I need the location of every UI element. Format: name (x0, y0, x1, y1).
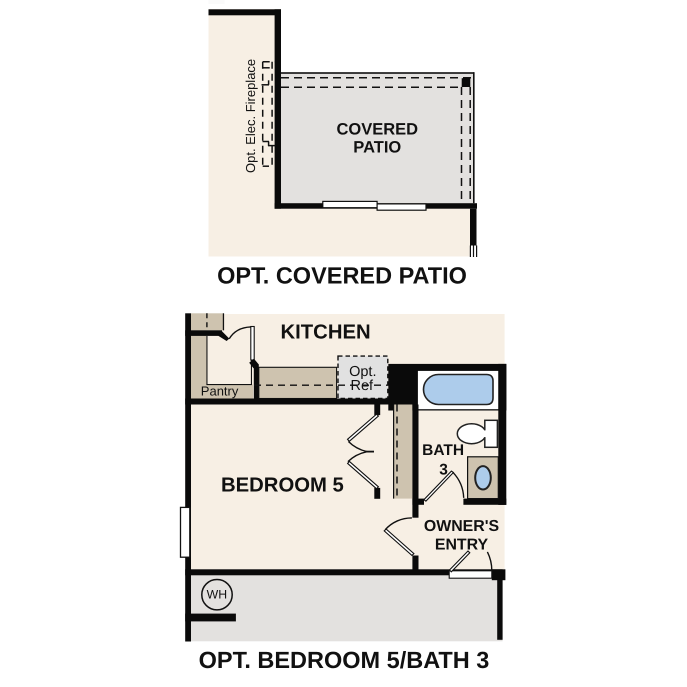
svg-text:OPT. COVERED PATIO: OPT. COVERED PATIO (217, 262, 467, 288)
svg-text:Opt. Elec. Fireplace: Opt. Elec. Fireplace (243, 59, 258, 173)
svg-text:BEDROOM 5: BEDROOM 5 (221, 475, 344, 497)
svg-text:KITCHEN: KITCHEN (281, 322, 371, 344)
svg-text:ENTRY: ENTRY (435, 537, 489, 554)
svg-text:COVERED: COVERED (336, 121, 418, 139)
svg-text:BATH: BATH (422, 442, 464, 459)
svg-text:Ref: Ref (351, 378, 375, 394)
svg-text:OPT. BEDROOM 5/BATH 3: OPT. BEDROOM 5/BATH 3 (199, 647, 490, 673)
svg-text:PATIO: PATIO (353, 139, 401, 157)
svg-text:WH: WH (207, 588, 228, 602)
svg-text:OWNER'S: OWNER'S (424, 518, 499, 535)
svg-text:Pantry: Pantry (201, 383, 239, 398)
